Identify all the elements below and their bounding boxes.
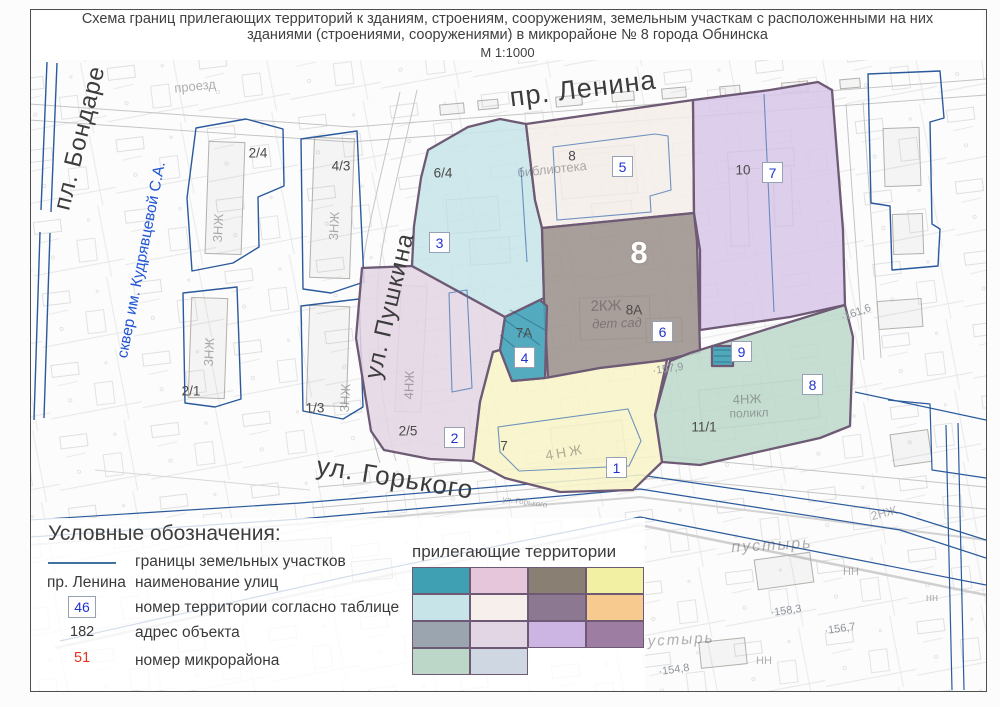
- territory-number-sample: 46: [68, 596, 96, 618]
- territory-color-swatch: [528, 567, 586, 594]
- territory-color-swatch: [586, 621, 644, 648]
- ghost-label: дет сад: [592, 315, 642, 332]
- address-label: 7: [500, 439, 508, 454]
- ghost-label: 2КЖ: [590, 297, 622, 315]
- legend-item-label: номер микрорайона: [135, 652, 279, 670]
- address-label: 11/1: [691, 420, 716, 435]
- ghost-label: 3НЖ: [337, 383, 353, 412]
- ghost-label: поликл: [729, 405, 768, 420]
- legend-heading: Условные обозначения:: [48, 522, 281, 546]
- zone-territory-6: [542, 213, 700, 378]
- territory-marker-2: 2: [444, 427, 465, 448]
- legend-item-label: адрес объекта: [135, 624, 240, 642]
- legend-item-label: номер территории согласно таблице: [135, 599, 399, 617]
- territory-marker-6: 6: [652, 321, 673, 342]
- ghost-label: НН: [756, 655, 772, 667]
- ghost-label: 4НЖ: [732, 391, 761, 407]
- address-label: 2/1: [182, 384, 201, 399]
- territory-color-swatch: [412, 621, 470, 648]
- title-line-2: зданиями (строениями, сооружениями) в ми…: [32, 27, 983, 43]
- ghost-label: НН: [843, 566, 859, 578]
- territory-color-swatch: [586, 594, 644, 621]
- empty-swatch-cell: [528, 648, 586, 675]
- address-label: 6/4: [434, 166, 453, 181]
- microdistrict-number: 8: [630, 235, 647, 271]
- adjacent-territories-title: прилегающие территории: [412, 542, 616, 562]
- address-label: 10: [735, 163, 750, 178]
- address-label: 4/3: [332, 159, 351, 174]
- territory-color-swatch: [470, 648, 528, 675]
- title-line-1: Схема границ прилегающих территорий к зд…: [32, 11, 983, 27]
- legend-item-label: наименование улиц: [135, 574, 278, 592]
- territory-color-swatch: [412, 594, 470, 621]
- ghost-label: 3НЖ: [201, 337, 217, 366]
- territory-color-swatch: [470, 594, 528, 621]
- address-label: 2/4: [249, 146, 268, 161]
- ghost-label: 3НЖ: [210, 213, 226, 242]
- address-label: 1/3: [306, 401, 325, 416]
- empty-swatch-cell: [586, 648, 644, 675]
- scheme-page: пр. Ленина ул. Пушкина ул. Горького пл. …: [0, 0, 1000, 707]
- territory-color-swatch: [412, 567, 470, 594]
- legend-item-label: границы земельных участков: [135, 553, 346, 571]
- address-sample: 182: [70, 624, 94, 640]
- territory-color-swatch: [586, 567, 644, 594]
- ghost-label: 4НЖ: [401, 370, 417, 399]
- territory-color-swatch: [528, 594, 586, 621]
- territory-marker-8: 8: [802, 374, 823, 395]
- territory-marker-5: 5: [612, 156, 633, 177]
- ghost-label: нн: [926, 592, 938, 604]
- adjacent-territories-swatches: [412, 567, 644, 675]
- microdistrict-number-sample: 51: [74, 650, 90, 666]
- address-label: 7А: [516, 326, 533, 341]
- territory-color-swatch: [470, 621, 528, 648]
- address-label: 2/5: [399, 424, 418, 439]
- territory-marker-9: 9: [731, 341, 752, 362]
- boundary-line-symbol: [48, 562, 116, 564]
- territory-marker-4: 4: [514, 347, 535, 368]
- territory-marker-3: 3: [429, 232, 450, 253]
- territory-color-swatch: [528, 621, 586, 648]
- territory-marker-7: 7: [762, 162, 783, 183]
- ghost-label: 3НЖ: [326, 211, 342, 240]
- street-name-sample: пр. Ленина: [47, 574, 126, 592]
- territory-color-swatch: [412, 648, 470, 675]
- territory-color-swatch: [470, 567, 528, 594]
- title-block: Схема границ прилегающих территорий к зд…: [32, 11, 983, 60]
- territory-marker-1: 1: [606, 457, 627, 478]
- scale-label: М 1:1000: [32, 45, 983, 60]
